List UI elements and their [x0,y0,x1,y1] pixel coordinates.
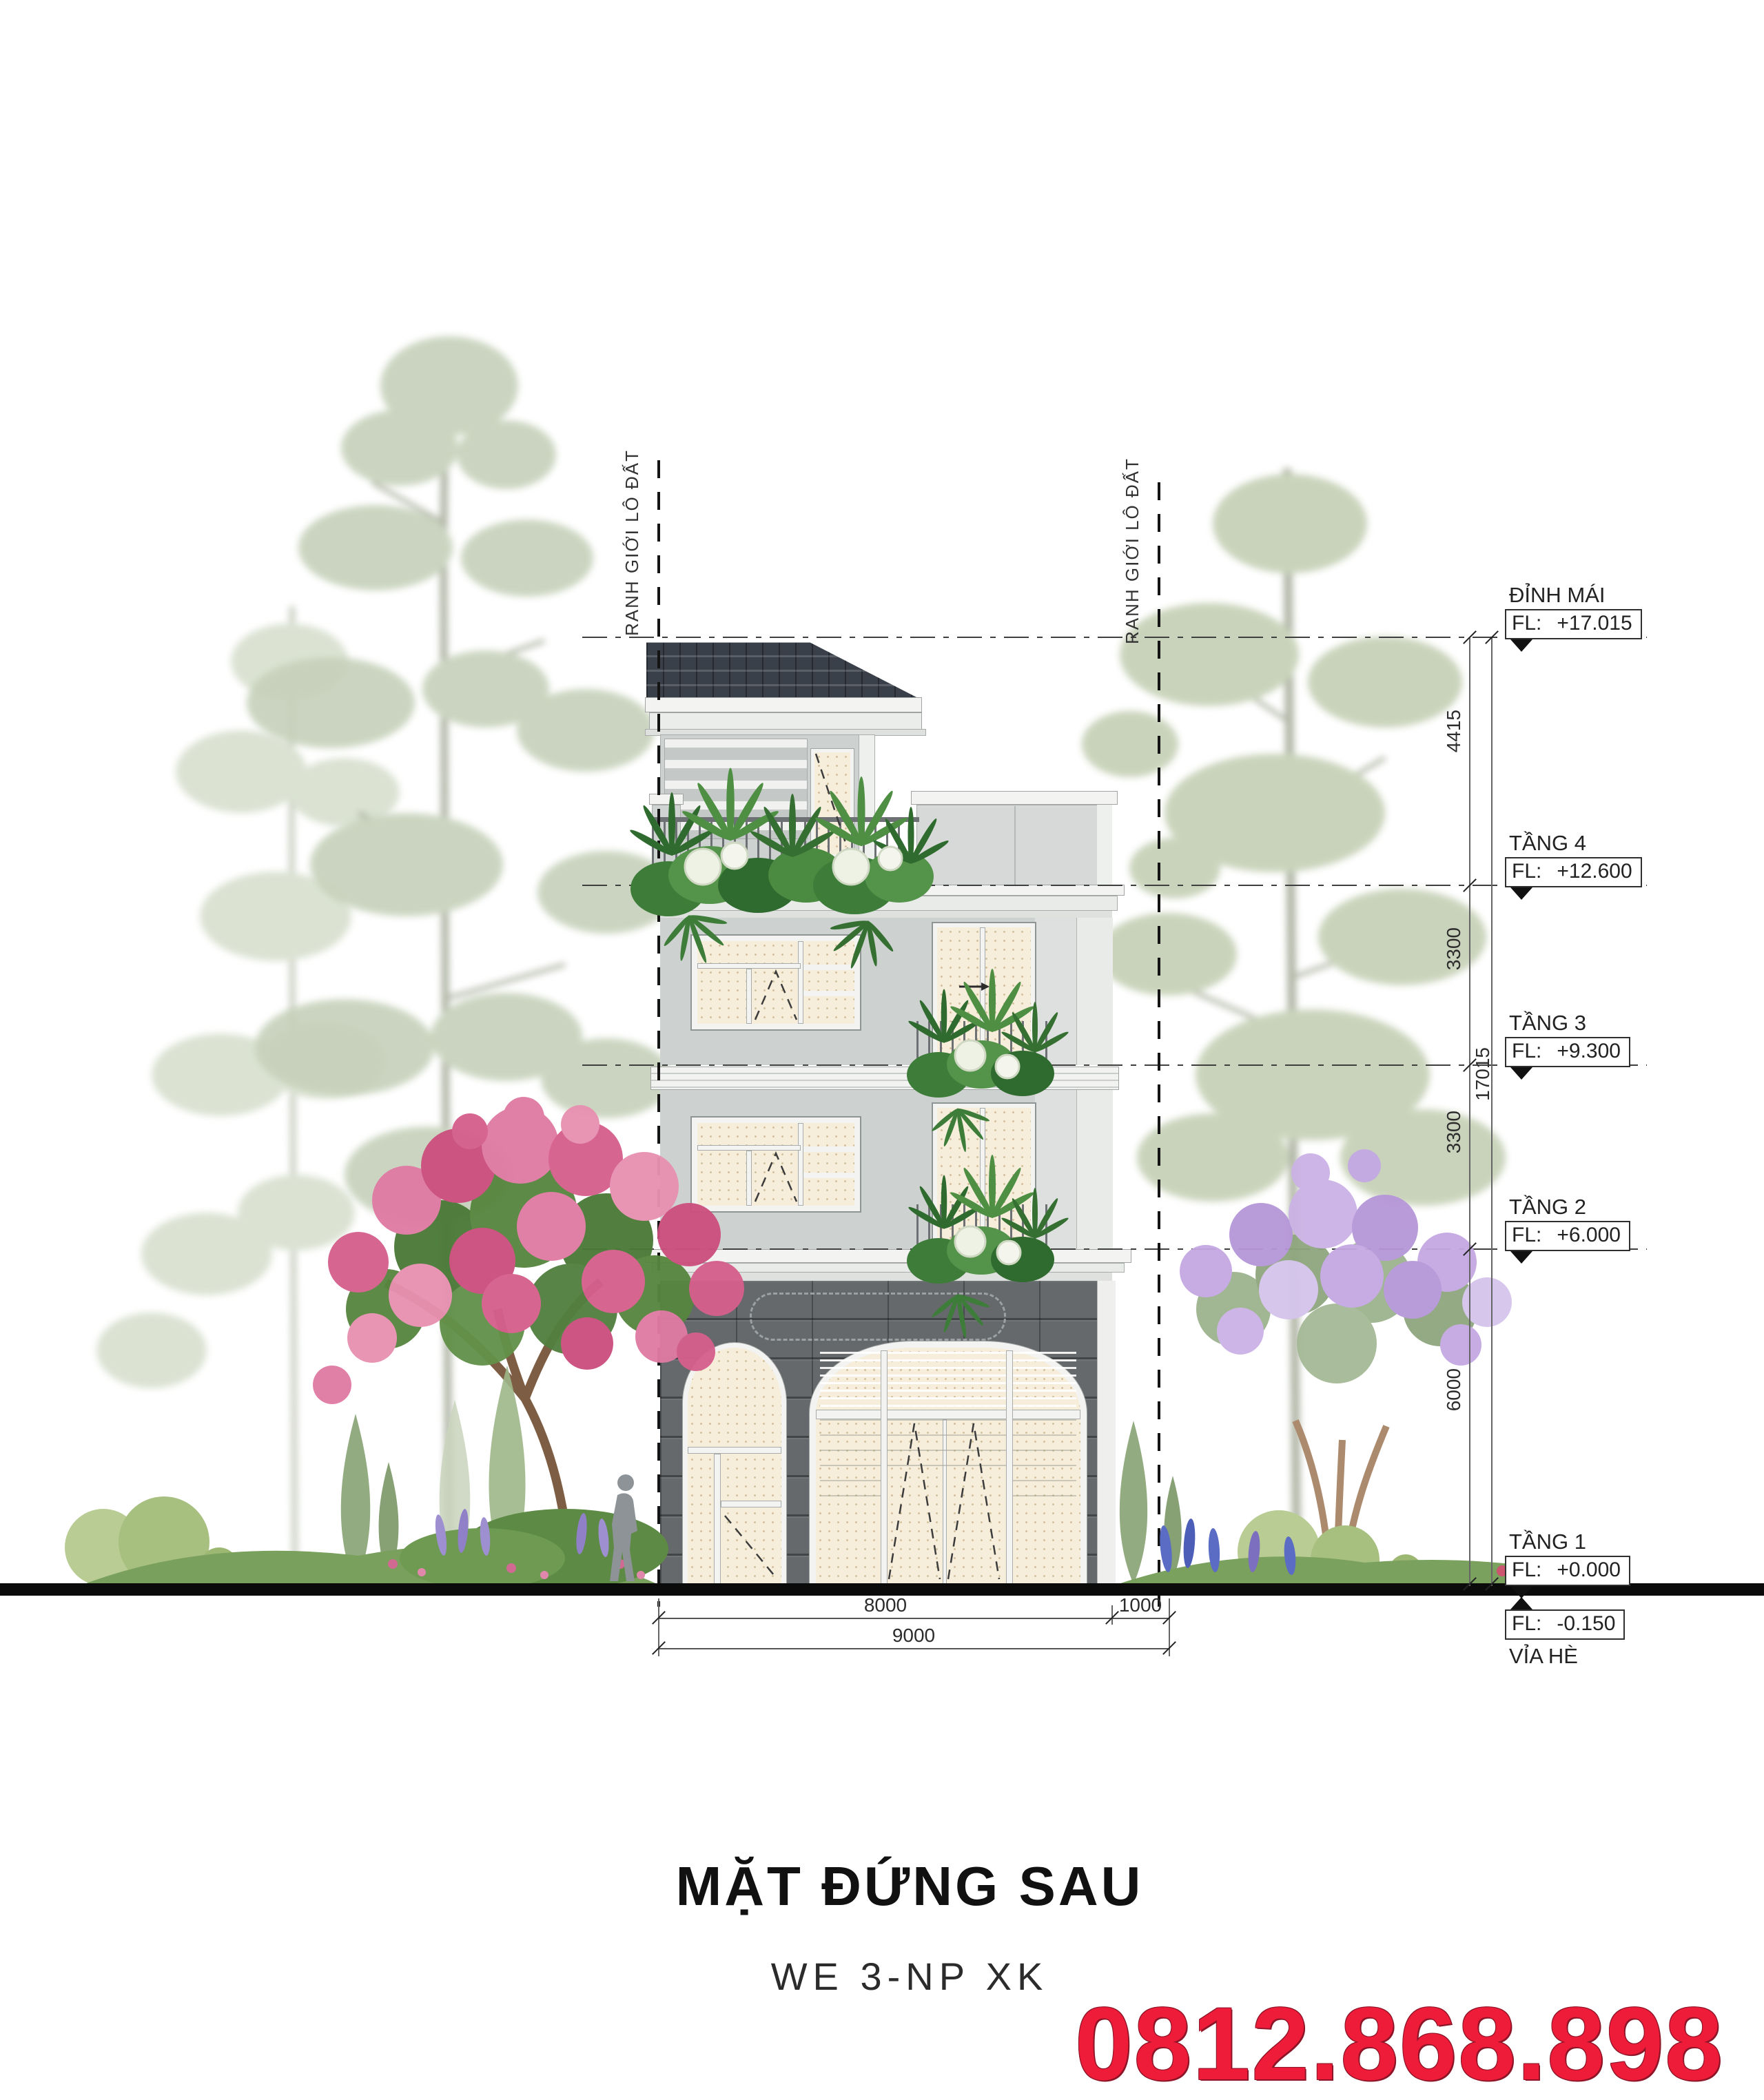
sheet-title: MẶT ĐỨNG SAU [28,1855,1764,1918]
fl-value: +9.300 [1557,1040,1621,1063]
dim-1000: 1000 [1102,1594,1178,1616]
dim-17015: 17015 [1472,1047,1494,1101]
level-name: TẦNG 4 [1509,831,1657,856]
level-name: VỈA HÈ [1509,1644,1657,1669]
level-name: TẦNG 2 [1509,1195,1657,1219]
level-marker-floor4: TẦNG 4 FL:+12.600 [1505,831,1657,900]
level-marker-floor2: TẦNG 2 FL:+6.000 [1505,1195,1657,1264]
purple-tree [1180,1149,1512,1579]
fl-value: +6.000 [1557,1224,1621,1247]
fl-value: +12.600 [1557,860,1632,883]
balcony-plants-floor3 [907,969,1069,1157]
fl-label: FL: [1512,1558,1541,1582]
phone-number: 0812.868.898 [1075,1984,1724,2100]
fl-value: -0.150 [1557,1612,1615,1636]
fl-value: +0.000 [1557,1558,1621,1582]
level-marker-floor3: TẦNG 3 FL:+9.300 [1505,1011,1657,1080]
dim-9000: 9000 [845,1625,983,1647]
balcony-plants-floor2 [907,1155,1069,1344]
balcony-plants-floor4 [628,768,950,980]
dim-chain-line-2 [1491,638,1493,1586]
fl-label: FL: [1512,1040,1541,1063]
fl-label: FL: [1512,612,1541,635]
dim-row1-line [658,1618,1170,1619]
vegetation-front [0,0,1764,2100]
dim-row2-line [658,1648,1170,1649]
fl-label: FL: [1512,1224,1541,1247]
dim-8000: 8000 [817,1594,954,1616]
dim-3300-a: 3300 [1443,927,1465,970]
level-name: TẦNG 3 [1509,1011,1657,1036]
dim-chain-line-1 [1469,638,1470,1586]
level-marker-floor1: TẦNG 1 FL:+0.000 [1505,1530,1657,1598]
fl-label: FL: [1512,860,1541,883]
level-triangle [1510,639,1532,652]
dim-6000: 6000 [1443,1368,1465,1411]
fl-label: FL: [1512,1612,1541,1636]
level-name: ĐỈNH MÁI [1509,583,1657,608]
level-triangle [1510,887,1532,900]
level-triangle [1510,1597,1532,1609]
level-name: TẦNG 1 [1509,1530,1657,1554]
level-triangle [1510,1251,1532,1264]
level-triangle [1510,1067,1532,1080]
pink-tree [313,1097,744,1579]
dim-3300-b: 3300 [1443,1111,1465,1153]
elevation-sheet: RANH GIỚI LÔ ĐẤT RANH GIỚI LÔ ĐẤT [0,0,1764,2100]
fl-value: +17.015 [1557,612,1632,635]
dim-4415: 4415 [1443,710,1465,752]
level-marker-roof-peak: ĐỈNH MÁI FL:+17.015 [1505,583,1657,652]
level-marker-sidewalk: FL:-0.150 VỈA HÈ [1505,1597,1657,1670]
